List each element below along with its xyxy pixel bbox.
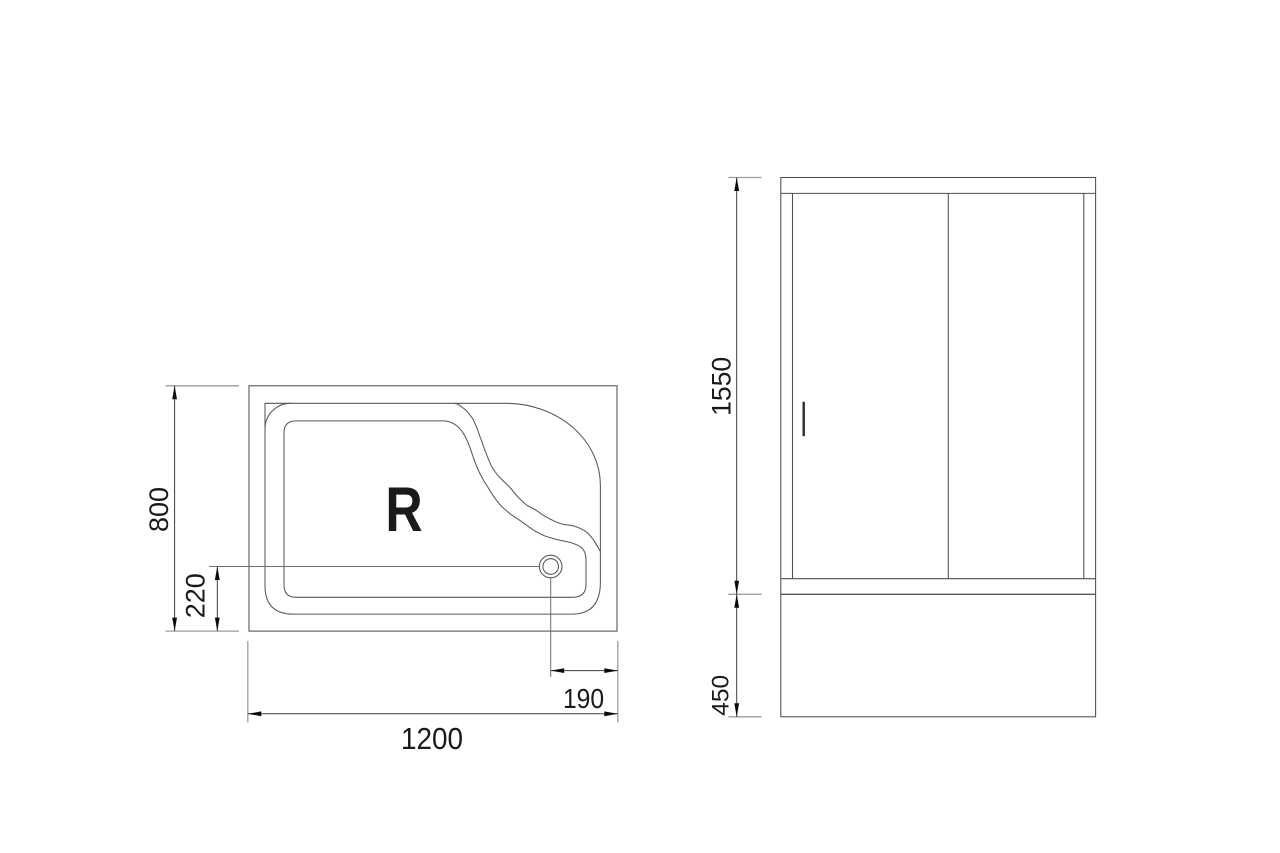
svg-text:1550: 1550 [707,357,737,416]
svg-text:190: 190 [563,682,604,714]
svg-text:220: 220 [181,573,211,618]
svg-text:R: R [385,475,422,545]
svg-text:1200: 1200 [401,721,463,756]
svg-text:800: 800 [144,487,174,532]
svg-text:450: 450 [708,675,735,716]
